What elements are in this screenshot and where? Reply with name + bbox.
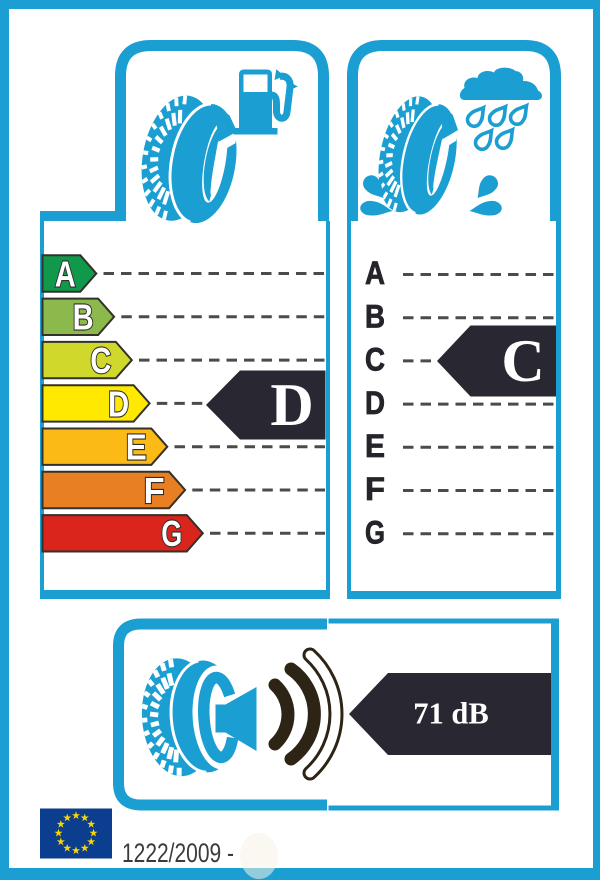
- svg-text:A: A: [55, 253, 76, 294]
- svg-text:D: D: [108, 383, 129, 424]
- svg-text:C: C: [365, 342, 385, 378]
- svg-text:71 dB: 71 dB: [413, 697, 488, 731]
- svg-text:B: B: [365, 298, 385, 334]
- svg-text:E: E: [365, 428, 385, 464]
- svg-text:C: C: [501, 328, 544, 394]
- svg-text:G: G: [161, 513, 182, 554]
- svg-text:G: G: [365, 514, 385, 550]
- svg-text:F: F: [144, 470, 165, 511]
- svg-text:E: E: [126, 427, 147, 468]
- svg-text:1222/2009 -: 1222/2009 -: [122, 838, 234, 868]
- svg-text:D: D: [270, 372, 313, 438]
- svg-text:F: F: [365, 471, 385, 507]
- svg-text:A: A: [365, 255, 385, 291]
- svg-text:B: B: [73, 297, 94, 338]
- svg-text:C: C: [90, 340, 111, 381]
- svg-text:D: D: [365, 385, 385, 421]
